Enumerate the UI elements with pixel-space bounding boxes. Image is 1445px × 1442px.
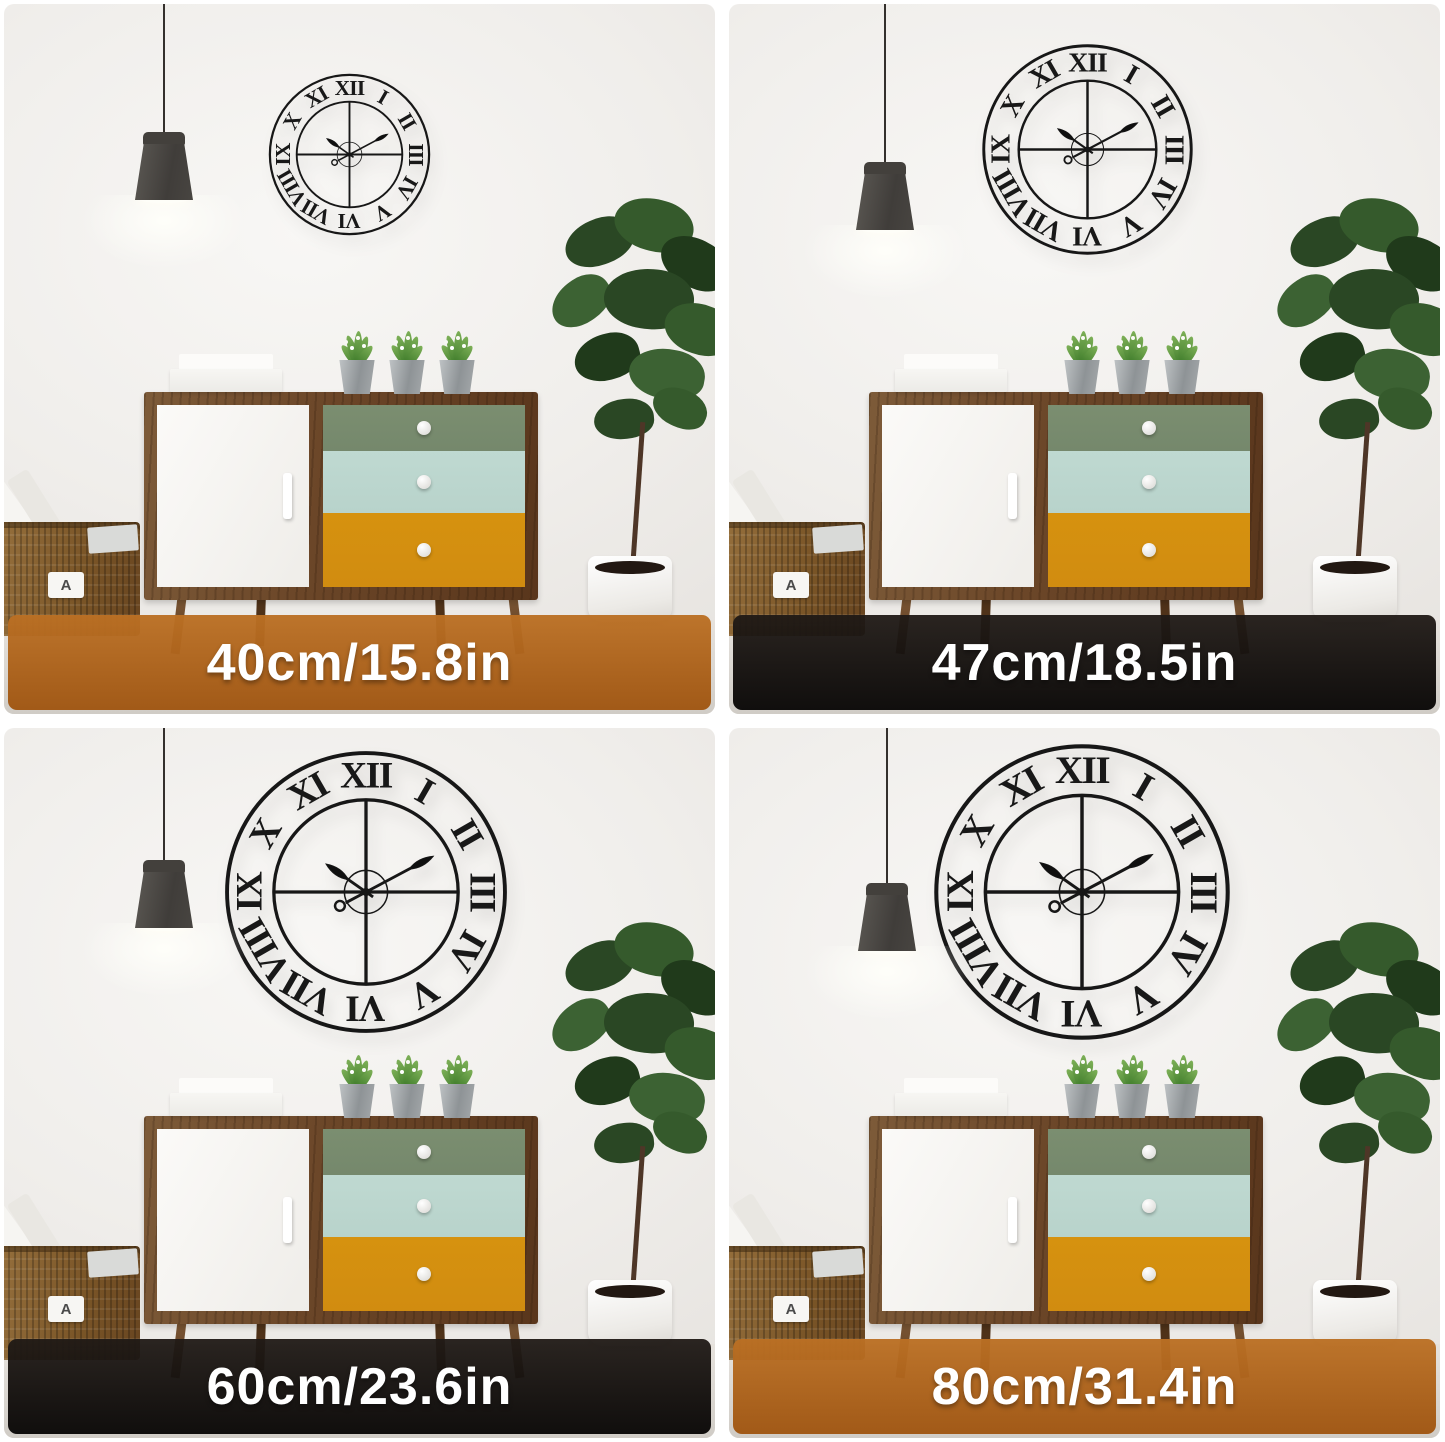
basket-card-slot (812, 1248, 864, 1277)
plant-pot (588, 556, 672, 622)
mini-plant-pot (337, 360, 377, 394)
numeral-III: III (1158, 134, 1189, 164)
size-banner: 40cm/15.8in (8, 615, 711, 710)
drawer-orange (1048, 1237, 1250, 1311)
foliage-blob (1317, 1120, 1380, 1165)
drawer-knob (1142, 1199, 1156, 1213)
panel-40cm: XIIIIIIIIIVVVIVIIVIIIIXXXI (4, 4, 715, 714)
roman-numeral-wall-clock: XIIIIIIIIIVVVIVIIVIIIIXXXI (980, 42, 1195, 257)
foliage-blob (592, 396, 655, 441)
numeral-XI: XI (300, 80, 332, 112)
drawer-knob (1142, 543, 1156, 557)
mini-plant-pot (387, 360, 427, 394)
numeral-III: III (461, 872, 502, 912)
white-book-stack (170, 1078, 282, 1116)
basket-label-tag: A (48, 1296, 84, 1322)
mini-potted-plant (1059, 322, 1105, 394)
numeral-XI: XI (1023, 53, 1064, 94)
lamp-glow (49, 923, 279, 1083)
numeral-XII: XII (340, 756, 393, 797)
cabinet-drawers (1048, 405, 1250, 587)
plant-trunk (630, 422, 645, 574)
plant-trunk (1355, 1146, 1370, 1298)
sideboard-cabinet (144, 1116, 538, 1324)
numeral-VI: VI (346, 987, 386, 1028)
lamp-collar (143, 860, 185, 873)
lamp-cord (886, 728, 889, 883)
numeral-XII: XII (1055, 749, 1110, 792)
cabinet-door-handle (1008, 473, 1017, 519)
basket-label-text: A (61, 577, 72, 594)
flower-dots (1075, 1070, 1079, 1074)
drawer-mint (323, 1175, 525, 1237)
flower-dots (1125, 346, 1129, 350)
flower-dots (400, 346, 404, 350)
pendant-lamp (49, 4, 279, 355)
mini-plant-pot (387, 1084, 427, 1118)
mini-potted-plant (1159, 1046, 1205, 1118)
wicker-storage-basket: A (729, 1168, 873, 1360)
drawer-green (323, 1129, 525, 1175)
mini-plant-pot (1112, 360, 1152, 394)
basket-label-text: A (786, 577, 797, 594)
basket-label-text: A (61, 1301, 72, 1318)
cabinet-drawers (323, 405, 525, 587)
clock-size-comparison-poster: XIIIIIIIIIVVVIVIIVIIIIXXXI (0, 0, 1445, 1442)
cabinet-door-handle (283, 1197, 292, 1243)
panel-80cm: XIIIIIIIIIVVVIVIIVIIIIXXXI (729, 728, 1440, 1438)
drawer-orange (1048, 513, 1250, 587)
drawer-knob (417, 543, 431, 557)
flower-dots (400, 1070, 404, 1074)
basket-card-slot (87, 1248, 139, 1277)
drawer-green (1048, 405, 1250, 451)
drawer-knob (1142, 475, 1156, 489)
mini-plant-pot (337, 1084, 377, 1118)
cabinet-door-handle (1008, 1197, 1017, 1243)
sideboard-cabinet (869, 1116, 1263, 1324)
panel-47cm: XIIIIIIIIIVVVIVIIVIIIIXXXI (729, 4, 1440, 714)
numeral-IV: IV (1141, 172, 1183, 213)
drawer-knob (417, 475, 431, 489)
mini-plant-pot (437, 360, 477, 394)
foliage-blob (592, 1120, 655, 1165)
mini-plant-pot (1062, 360, 1102, 394)
mini-potted-plant (1159, 322, 1205, 394)
pendant-lamp (772, 728, 1002, 1106)
lamp-cord (884, 4, 887, 162)
numeral-I: I (373, 84, 392, 109)
flower-dots (1175, 1070, 1179, 1074)
sideboard-cabinet (869, 392, 1263, 600)
wicker-storage-basket: A (729, 444, 873, 636)
size-banner: 60cm/23.6in (8, 1339, 711, 1434)
mini-plant-pot (437, 1084, 477, 1118)
numeral-I: I (1126, 765, 1160, 809)
lamp-cord (163, 4, 166, 132)
numeral-IV: IV (438, 923, 494, 978)
mini-potted-plant (1109, 322, 1155, 394)
numeral-VI: VI (337, 208, 360, 232)
sideboard-cabinet (144, 392, 538, 600)
flower-dots (1175, 346, 1179, 350)
numeral-I: I (408, 771, 441, 814)
drawer-mint (1048, 451, 1250, 513)
basket-label-tag: A (773, 572, 809, 598)
drawer-knob (417, 421, 431, 435)
mini-potted-plant (1109, 1046, 1155, 1118)
mini-plant-pot (1162, 1084, 1202, 1118)
basket-card-slot (87, 524, 139, 553)
drawer-knob (417, 1199, 431, 1213)
cabinet-drawers (323, 1129, 525, 1311)
drawer-knob (417, 1145, 431, 1159)
size-banner: 47cm/18.5in (733, 615, 1436, 710)
mini-plant-pot (1062, 1084, 1102, 1118)
mini-plant-pot (1162, 360, 1202, 394)
flower-dots (450, 1070, 454, 1074)
white-book-stack (895, 354, 1007, 392)
plant-pot (1313, 1280, 1397, 1346)
lamp-glow (49, 195, 279, 355)
size-banner: 80cm/31.4in (733, 1339, 1436, 1434)
cabinet-door-handle (283, 473, 292, 519)
wicker-storage-basket: A (4, 444, 148, 636)
numeral-IV: IV (390, 172, 423, 204)
flower-dots (350, 346, 354, 350)
mini-potted-plant (334, 1046, 380, 1118)
fiddle-leaf-plant (1260, 194, 1440, 634)
size-label: 80cm/31.4in (932, 1361, 1238, 1413)
flower-dots (1075, 346, 1079, 350)
flower-dots (1125, 1070, 1129, 1074)
lamp-shade (135, 872, 193, 928)
lamp-shade (856, 174, 914, 230)
numeral-VI: VI (1072, 220, 1101, 251)
lamp-cord (163, 728, 166, 860)
lamp-collar (866, 883, 908, 896)
numeral-IV: IV (1158, 924, 1216, 982)
plant-trunk (1355, 422, 1370, 574)
size-label: 47cm/18.5in (932, 637, 1238, 689)
size-label: 40cm/15.8in (207, 637, 513, 689)
numeral-I: I (1118, 58, 1142, 90)
white-book-stack (170, 354, 282, 392)
lamp-collar (864, 162, 906, 175)
basket-label-text: A (786, 1301, 797, 1318)
fiddle-leaf-plant (535, 194, 715, 634)
fiddle-leaf-plant (535, 918, 715, 1358)
mini-potted-plant (1059, 1046, 1105, 1118)
mini-potted-plant (434, 1046, 480, 1118)
drawer-orange (323, 513, 525, 587)
numeral-VI: VI (1061, 992, 1102, 1035)
numeral-XI: XI (281, 764, 336, 819)
plant-pot (588, 1280, 672, 1346)
lamp-shade (858, 895, 916, 951)
plant-trunk (630, 1146, 645, 1298)
drawer-orange (323, 1237, 525, 1311)
drawer-green (323, 405, 525, 451)
plant-pot (1313, 556, 1397, 622)
mini-potted-plant (334, 322, 380, 394)
drawer-mint (1048, 1175, 1250, 1237)
fiddle-leaf-plant (1260, 918, 1440, 1358)
mini-potted-plant (384, 1046, 430, 1118)
basket-label-tag: A (773, 1296, 809, 1322)
mini-potted-plant (384, 322, 430, 394)
flower-dots (350, 1070, 354, 1074)
drawer-mint (323, 451, 525, 513)
lamp-collar (143, 132, 185, 145)
drawer-knob (1142, 1145, 1156, 1159)
numeral-XII: XII (1068, 47, 1107, 78)
wicker-storage-basket: A (4, 1168, 148, 1360)
size-label: 60cm/23.6in (207, 1361, 513, 1413)
numeral-XII: XII (334, 76, 364, 100)
drawer-knob (1142, 1267, 1156, 1281)
numeral-III: III (1182, 871, 1225, 913)
foliage-blob (1317, 396, 1380, 441)
white-book-stack (895, 1078, 1007, 1116)
pendant-lamp (49, 728, 279, 1083)
roman-numeral-wall-clock: XIIIIIIIIIVVVIVIIVIIIIXXXI (267, 72, 432, 237)
basket-label-tag: A (48, 572, 84, 598)
drawer-green (1048, 1129, 1250, 1175)
drawer-knob (1142, 421, 1156, 435)
flower-dots (450, 346, 454, 350)
numeral-III: III (403, 143, 427, 166)
mini-plant-pot (1112, 1084, 1152, 1118)
basket-card-slot (812, 524, 864, 553)
lamp-shade (135, 144, 193, 200)
pendant-lamp (770, 4, 1000, 385)
mini-potted-plant (434, 322, 480, 394)
drawer-knob (417, 1267, 431, 1281)
cabinet-drawers (1048, 1129, 1250, 1311)
panel-60cm: XIIIIIIIIIVVVIVIIVIIIIXXXI (4, 728, 715, 1438)
